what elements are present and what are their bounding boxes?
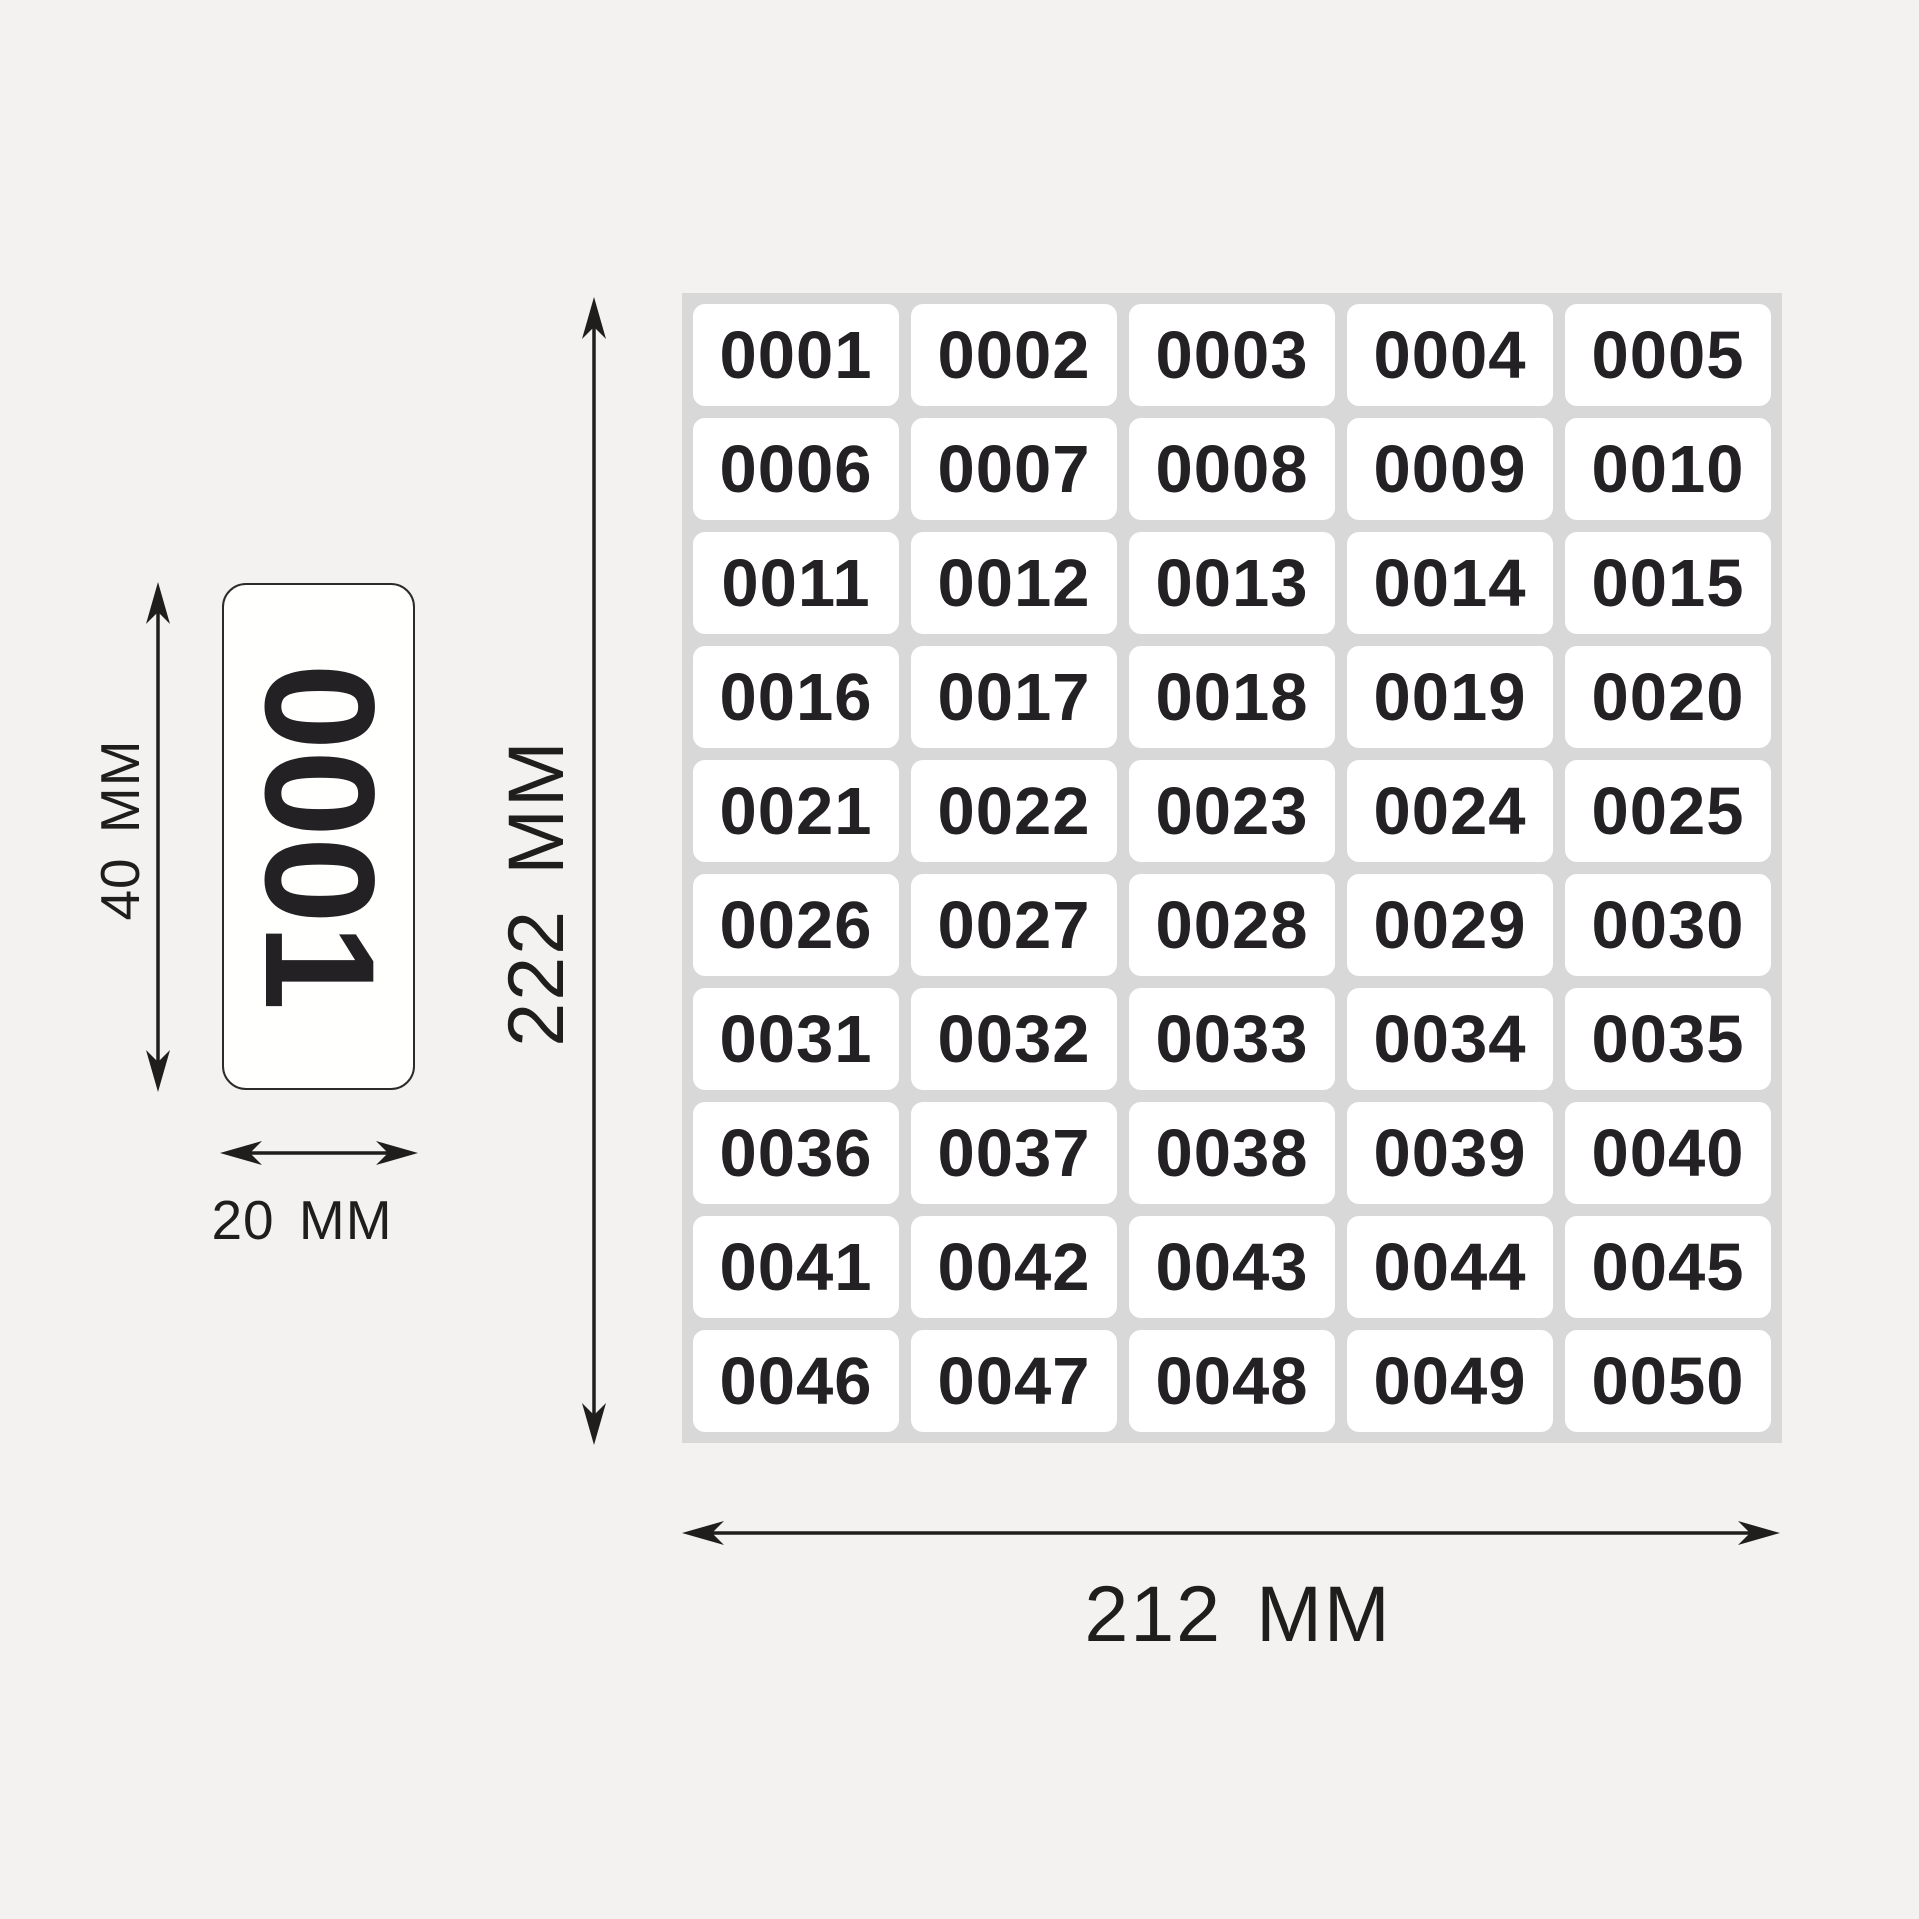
cell-number: 0010 (1591, 431, 1744, 508)
cell-number: 0025 (1591, 773, 1744, 850)
cell-number: 0011 (721, 545, 870, 622)
sheet-cell: 0022 (911, 760, 1117, 862)
sheet-cell: 0007 (911, 418, 1117, 520)
sheet-cell: 0001 (693, 304, 899, 406)
sheet-cell: 0025 (1565, 760, 1771, 862)
cell-number: 0039 (1373, 1115, 1526, 1192)
sheet-cell: 0042 (911, 1216, 1117, 1318)
cell-number: 0047 (937, 1343, 1090, 1420)
cell-number: 0020 (1591, 659, 1744, 736)
cell-number: 0045 (1591, 1229, 1744, 1306)
cell-number: 0036 (719, 1115, 872, 1192)
sheet-cell: 0037 (911, 1102, 1117, 1204)
sheet-cell: 0039 (1347, 1102, 1553, 1204)
sheet-cell: 0026 (693, 874, 899, 976)
sheet-cell: 0027 (911, 874, 1117, 976)
cell-number: 0040 (1591, 1115, 1744, 1192)
sheet-cell: 0023 (1129, 760, 1335, 862)
label-height-dimension: 40 MM (87, 580, 153, 1080)
cell-number: 0041 (719, 1229, 872, 1306)
cell-number: 0029 (1373, 887, 1526, 964)
cell-number: 0035 (1591, 1001, 1744, 1078)
sheet-cell: 0029 (1347, 874, 1553, 976)
sheet-cell: 0041 (693, 1216, 899, 1318)
sheet-cell: 0050 (1565, 1330, 1771, 1432)
cell-number: 0002 (937, 317, 1090, 394)
cell-number: 0046 (719, 1343, 872, 1420)
sheet-cell: 0014 (1347, 532, 1553, 634)
cell-number: 0033 (1155, 1001, 1308, 1078)
sheet-cell: 0031 (693, 988, 899, 1090)
sheet-cell: 0036 (693, 1102, 899, 1204)
cell-number: 0007 (937, 431, 1090, 508)
sheet-cell: 0003 (1129, 304, 1335, 406)
sheet-cell: 0045 (1565, 1216, 1771, 1318)
cell-number: 0019 (1373, 659, 1526, 736)
sheet-height-arrow (576, 295, 612, 1447)
sheet-cell: 0046 (693, 1330, 899, 1432)
cell-number: 0048 (1155, 1343, 1308, 1420)
cell-number: 0043 (1155, 1229, 1308, 1306)
cell-number: 0001 (719, 317, 872, 394)
sheet-cell: 0032 (911, 988, 1117, 1090)
cell-number: 0031 (719, 1001, 872, 1078)
sheet-cell: 0012 (911, 532, 1117, 634)
sheet-cell: 0034 (1347, 988, 1553, 1090)
sheet-cell: 0002 (911, 304, 1117, 406)
sheet-width-arrow (680, 1515, 1782, 1551)
cell-number: 0050 (1591, 1343, 1744, 1420)
sample-sticker: 0001 (222, 583, 415, 1090)
label-width-dimension: 20 MM (52, 1187, 552, 1253)
cell-number: 0009 (1373, 431, 1526, 508)
cell-number: 0012 (937, 545, 1090, 622)
cell-number: 0032 (937, 1001, 1090, 1078)
sheet-cell: 0006 (693, 418, 899, 520)
cell-number: 0013 (1155, 545, 1308, 622)
sheet-cell: 0048 (1129, 1330, 1335, 1432)
cell-number: 0038 (1155, 1115, 1308, 1192)
cell-number: 0021 (719, 773, 872, 850)
sheet-cell: 0017 (911, 646, 1117, 748)
cell-number: 0008 (1155, 431, 1308, 508)
cell-number: 0044 (1373, 1229, 1526, 1306)
cell-number: 0027 (937, 887, 1090, 964)
cell-number: 0005 (1591, 317, 1744, 394)
cell-number: 0016 (719, 659, 872, 736)
cell-number: 0030 (1591, 887, 1744, 964)
sheet-cell: 0019 (1347, 646, 1553, 748)
cell-number: 0034 (1373, 1001, 1526, 1078)
sheet-cell: 0005 (1565, 304, 1771, 406)
cell-number: 0018 (1155, 659, 1308, 736)
cell-number: 0022 (937, 773, 1090, 850)
sheet-cell: 0040 (1565, 1102, 1771, 1204)
sheet-cell: 0009 (1347, 418, 1553, 520)
cell-number: 0024 (1373, 773, 1526, 850)
sheet-cell: 0033 (1129, 988, 1335, 1090)
cell-number: 0042 (937, 1229, 1090, 1306)
sheet-cell: 0015 (1565, 532, 1771, 634)
sheet-width-dimension: 212 MM (988, 1574, 1488, 1654)
sticker-sheet: 0001000200030004000500060007000800090010… (682, 293, 1782, 1443)
sheet-cell: 0044 (1347, 1216, 1553, 1318)
cell-number: 0014 (1373, 545, 1526, 622)
sheet-cell: 0016 (693, 646, 899, 748)
sheet-cell: 0024 (1347, 760, 1553, 862)
sheet-height-dimension: 222 MM (496, 643, 576, 1143)
cell-number: 0049 (1373, 1343, 1526, 1420)
cell-number: 0028 (1155, 887, 1308, 964)
cell-number: 0017 (937, 659, 1090, 736)
sheet-cell: 0011 (693, 532, 899, 634)
sheet-cell: 0004 (1347, 304, 1553, 406)
sheet-cell: 0030 (1565, 874, 1771, 976)
sheet-cell: 0013 (1129, 532, 1335, 634)
cell-number: 0003 (1155, 317, 1308, 394)
cell-number: 0026 (719, 887, 872, 964)
sheet-cell: 0010 (1565, 418, 1771, 520)
sheet-cell: 0008 (1129, 418, 1335, 520)
cell-number: 0006 (719, 431, 872, 508)
sheet-cell: 0021 (693, 760, 899, 862)
sheet-cell: 0028 (1129, 874, 1335, 976)
sheet-cell: 0047 (911, 1330, 1117, 1432)
sheet-cell: 0020 (1565, 646, 1771, 748)
cell-number: 0023 (1155, 773, 1308, 850)
sheet-cell: 0035 (1565, 988, 1771, 1090)
sheet-cell: 0049 (1347, 1330, 1553, 1432)
sheet-cell: 0018 (1129, 646, 1335, 748)
cell-number: 0015 (1591, 545, 1744, 622)
label-width-arrow (218, 1135, 420, 1171)
sample-sticker-number: 0001 (239, 577, 399, 1097)
cell-number: 0037 (937, 1115, 1090, 1192)
cell-number: 0004 (1373, 317, 1526, 394)
sheet-cell: 0038 (1129, 1102, 1335, 1204)
sheet-cell: 0043 (1129, 1216, 1335, 1318)
